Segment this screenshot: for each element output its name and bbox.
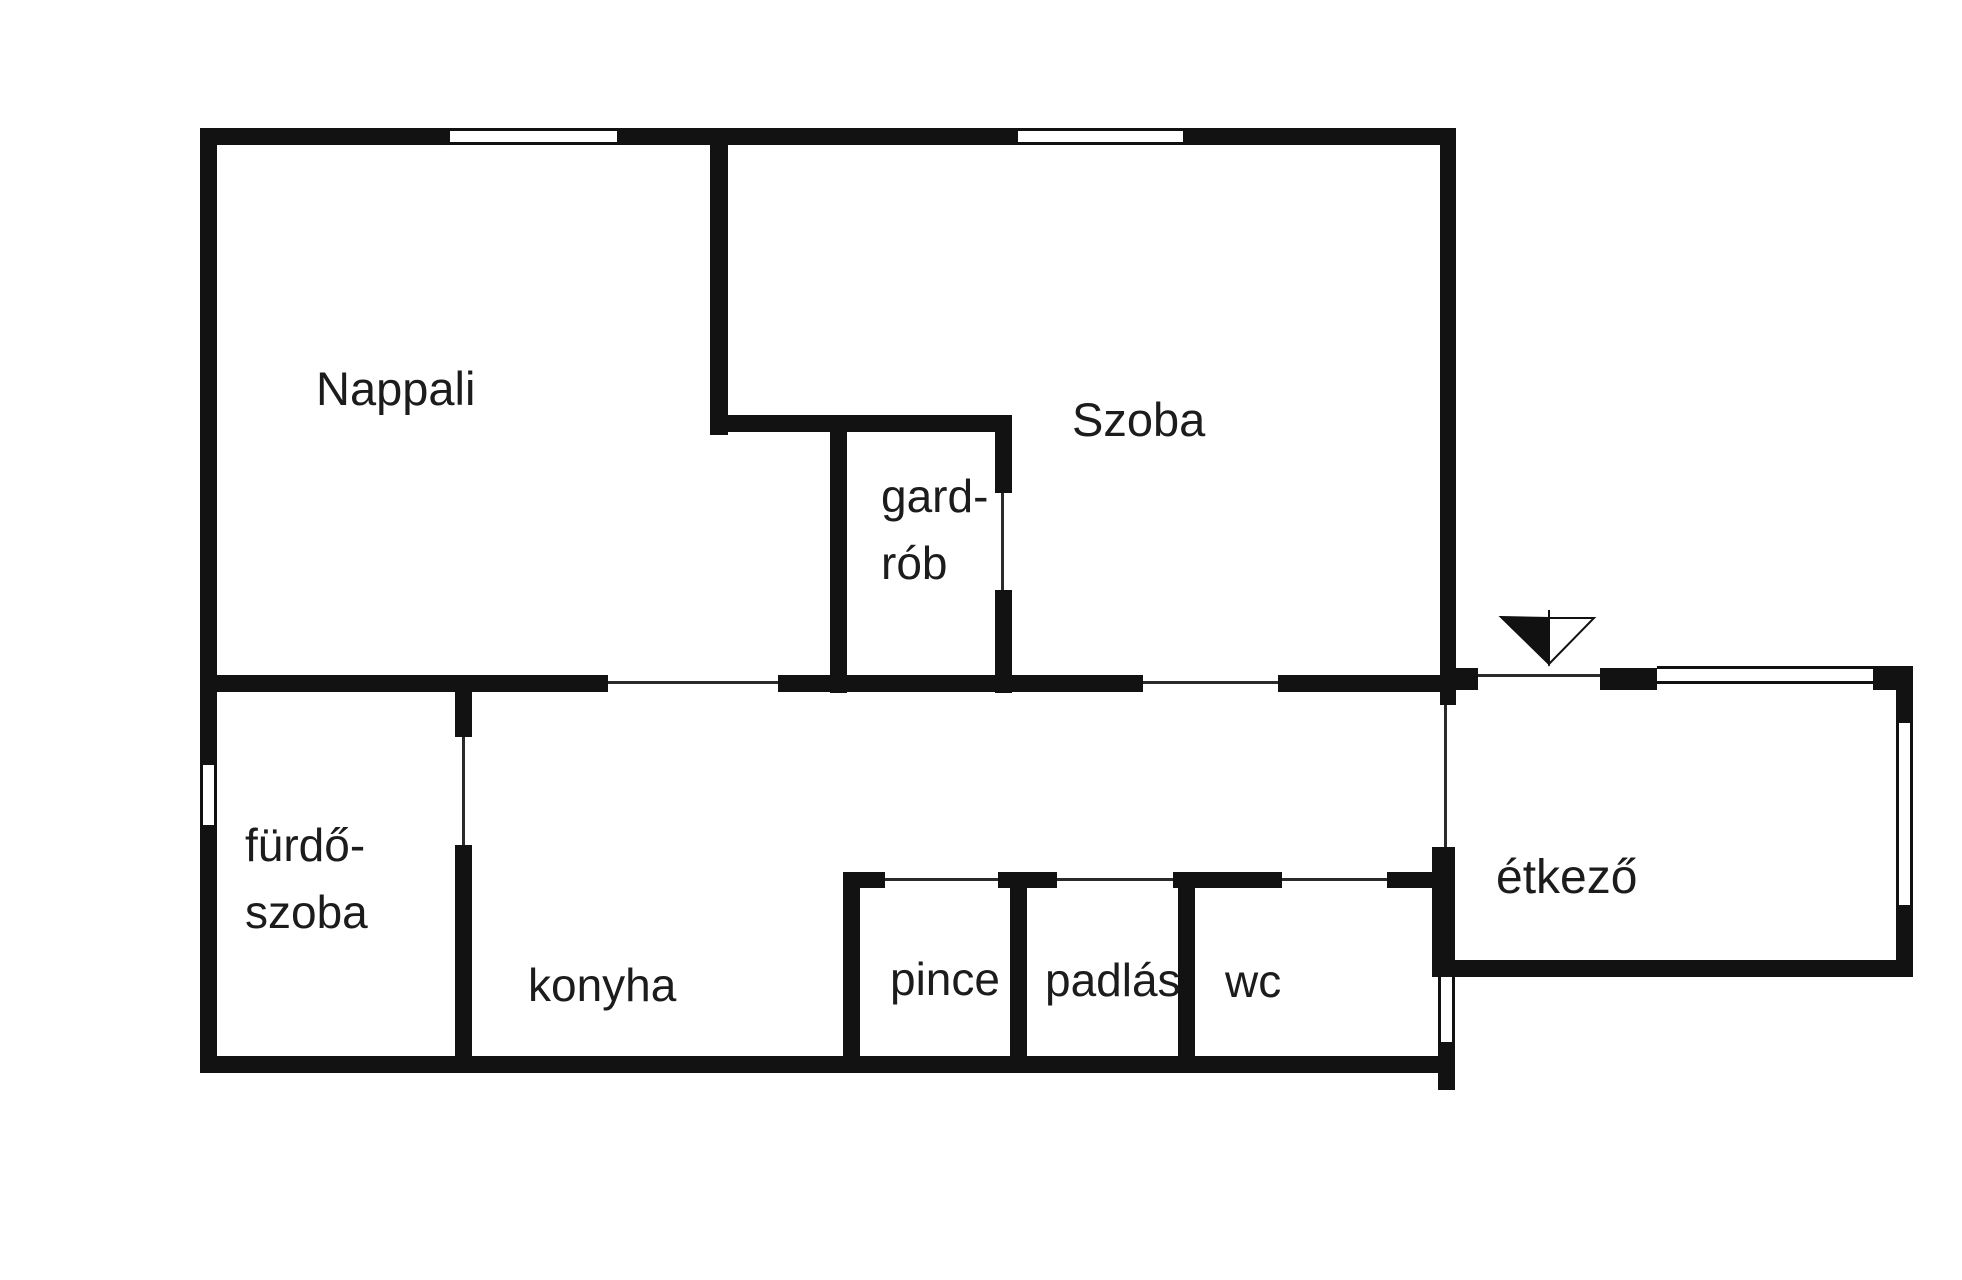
window [200,765,217,825]
wall-segment [830,415,847,693]
door-opening [1444,705,1447,847]
wall-segment [1010,872,1027,1073]
wall-segment [1278,675,1448,692]
wall-segment [995,590,1012,693]
room-label-pince: pince [890,946,1000,1013]
entrance-arrow-icon [1495,608,1600,670]
door-opening [885,878,998,881]
wall-segment [1387,872,1433,888]
window [1018,128,1183,145]
wall-segment [200,675,608,692]
wall-segment [1432,847,1455,977]
wall-segment [998,872,1057,888]
wall-segment [710,415,1010,432]
door-opening [608,681,778,684]
wall-segment [200,825,217,1073]
door-opening [1143,681,1278,684]
window [1896,723,1913,905]
room-label-furdoszoba: fürdő- szoba [245,812,368,946]
room-label-szoba: Szoba [1072,386,1205,453]
wall-segment [995,415,1012,493]
room-label-padlas: padlás [1045,947,1181,1014]
wall-segment [843,872,860,1073]
wall-segment [1896,666,1913,723]
wall-segment [710,145,728,435]
room-label-konyha: konyha [528,952,676,1019]
wall-segment [843,872,885,888]
wall-segment [1440,128,1456,705]
door-opening [1282,878,1387,881]
wall-segment [200,1056,1455,1073]
wall-segment [1432,960,1913,977]
door-opening [462,737,465,845]
room-label-gardrob: gard- rób [881,463,988,597]
wall-segment [1438,1042,1455,1090]
wall-segment [455,692,472,737]
room-label-nappali: Nappali [316,355,475,422]
door-opening [1001,493,1004,590]
room-label-wc: wc [1225,948,1281,1015]
wall-segment [1600,668,1657,690]
floor-plan: NappaliSzobagard- róbfürdő- szobakonyhap… [0,0,1962,1280]
door-opening [1478,674,1600,677]
wall-segment [200,128,450,145]
room-label-etkezo: étkező [1496,844,1637,911]
wall-segment [1183,128,1456,145]
wall-segment [1440,668,1478,690]
wall-segment [455,845,472,1073]
window [1438,977,1455,1042]
window [1657,666,1873,684]
door-opening [1057,878,1173,881]
wall-segment [617,128,1018,145]
window [450,128,617,145]
wall-segment [200,128,217,765]
